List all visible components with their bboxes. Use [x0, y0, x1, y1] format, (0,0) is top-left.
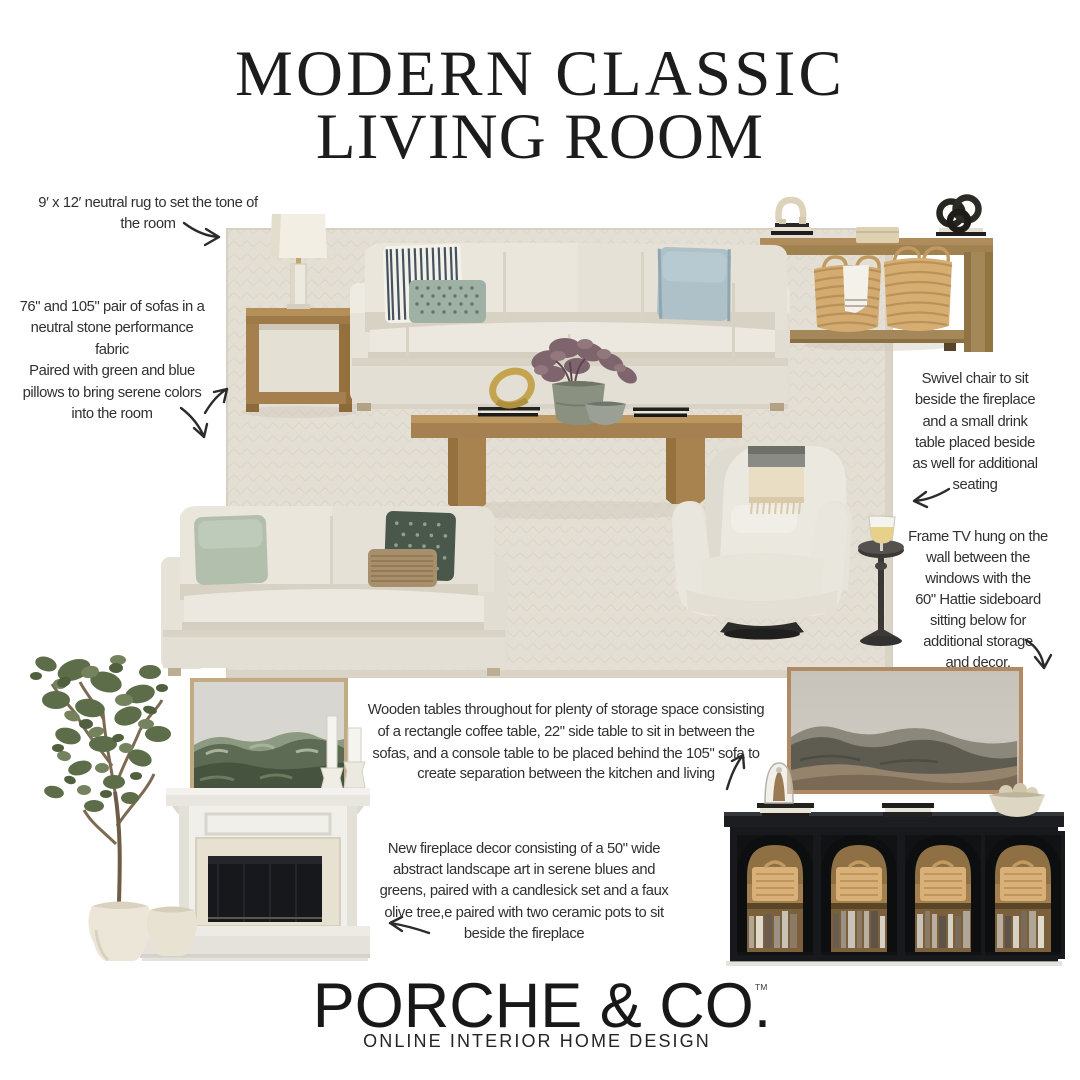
svg-text:beside the fireplace: beside the fireplace: [464, 926, 584, 942]
svg-text:and decor.: and decor.: [945, 655, 1010, 671]
svg-text:Frame TV hung on the: Frame TV hung on the: [908, 529, 1048, 545]
svg-text:additional storage: additional storage: [923, 634, 1033, 650]
svg-text:60" Hattie sideboard: 60" Hattie sideboard: [915, 592, 1041, 608]
svg-text:sitting below for: sitting below for: [930, 613, 1026, 629]
svg-text:the room: the room: [120, 216, 175, 232]
svg-text:sofas, and a console table to: sofas, and a console table to be placed …: [372, 746, 759, 762]
svg-text:9′ x 12′ neutral rug to set th: 9′ x 12′ neutral rug to set the tone of: [38, 195, 259, 211]
svg-text:abstract landscape art in sere: abstract landscape art in serene blues a…: [393, 862, 655, 878]
svg-text:wall between the: wall between the: [925, 550, 1030, 566]
svg-text:seating: seating: [953, 477, 998, 493]
svg-text:LIVING ROOM: LIVING ROOM: [316, 101, 764, 173]
svg-text:MODERN CLASSIC: MODERN CLASSIC: [235, 38, 845, 110]
svg-text:Swivel chair to sit: Swivel chair to sit: [922, 371, 1029, 387]
svg-text:beside the fireplace: beside the fireplace: [915, 392, 1035, 408]
svg-text:fabric: fabric: [95, 342, 130, 358]
svg-text:greens, paired with a candlesi: greens, paired with a candlesick set and…: [380, 883, 670, 899]
svg-text:of a rectangle coffee table, 2: of a rectangle coffee table, 22" side ta…: [377, 724, 754, 740]
svg-text:pillows to bring serene colors: pillows to bring serene colors: [23, 385, 202, 401]
svg-text:table placed beside: table placed beside: [915, 435, 1035, 451]
svg-text:76" and 105" pair of sofas in: 76" and 105" pair of sofas in a: [20, 299, 206, 315]
svg-text:and a small drink: and a small drink: [922, 414, 1028, 430]
svg-text:New fireplace decor consisting: New fireplace decor consisting of a 50" …: [388, 841, 660, 857]
svg-text:windows with the: windows with the: [924, 571, 1031, 587]
svg-text:neutral stone performance: neutral stone performance: [31, 320, 194, 336]
svg-text:olive tree,e paired with two c: olive tree,e paired with two ceramic pot…: [384, 905, 664, 921]
svg-text:Paired with green and blue: Paired with green and blue: [29, 363, 195, 379]
svg-text:create separation between the: create separation between the kitchen an…: [417, 766, 715, 782]
svg-text:into the room: into the room: [71, 406, 152, 422]
svg-text:ONLINE INTERIOR HOME DESIGN: ONLINE INTERIOR HOME DESIGN: [363, 1031, 711, 1051]
svg-text:TM: TM: [755, 982, 767, 992]
svg-text:Wooden tables throughout for p: Wooden tables throughout for plenty of s…: [368, 702, 765, 718]
svg-text:as well for additional: as well for additional: [912, 456, 1037, 472]
